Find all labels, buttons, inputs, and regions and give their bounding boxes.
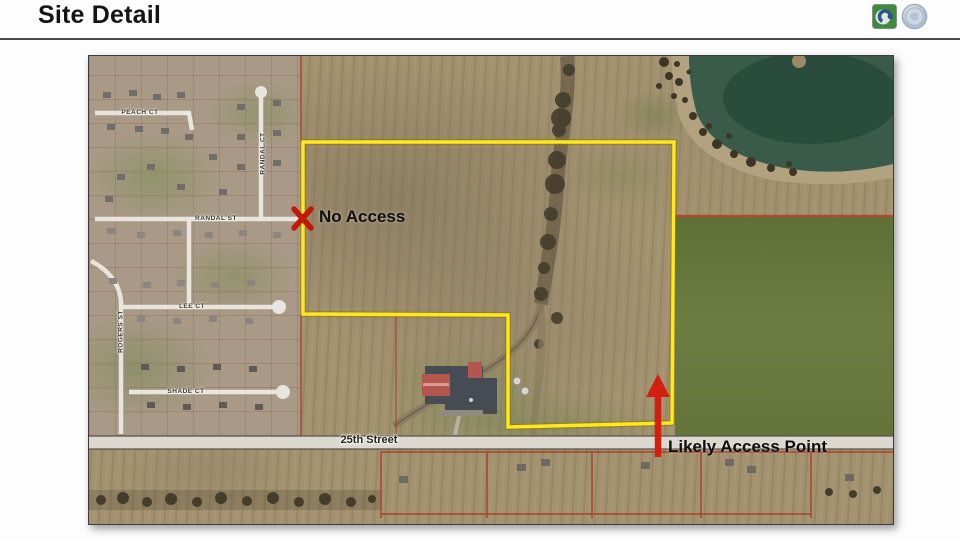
street-label-randal-ct: RANDAL CT — [260, 124, 267, 184]
street-label-shade-ct: SHADE CT — [141, 388, 231, 395]
street-label-peach-ct: PEACH CT — [103, 109, 177, 116]
slide: Site Detail — [0, 0, 960, 540]
likely-access-point-label: Likely Access Point — [668, 437, 827, 457]
aerial-site-map: PEACH CT RANDAL CT RANDAL ST LEE CT ROGE… — [88, 55, 894, 525]
street-label-25th-street: 25th Street — [324, 434, 414, 446]
no-access-label: No Access — [319, 207, 405, 227]
recycle-logo-icon — [872, 4, 897, 34]
street-label-lee-ct: LEE CT — [167, 303, 217, 310]
page-title: Site Detail — [38, 1, 161, 30]
header-icons — [872, 3, 928, 35]
header-divider — [0, 38, 960, 40]
street-label-randal-st: RANDAL ST — [184, 215, 248, 222]
street-label-rogers-st: ROGERS ST — [118, 302, 125, 362]
seal-icon — [901, 3, 928, 35]
